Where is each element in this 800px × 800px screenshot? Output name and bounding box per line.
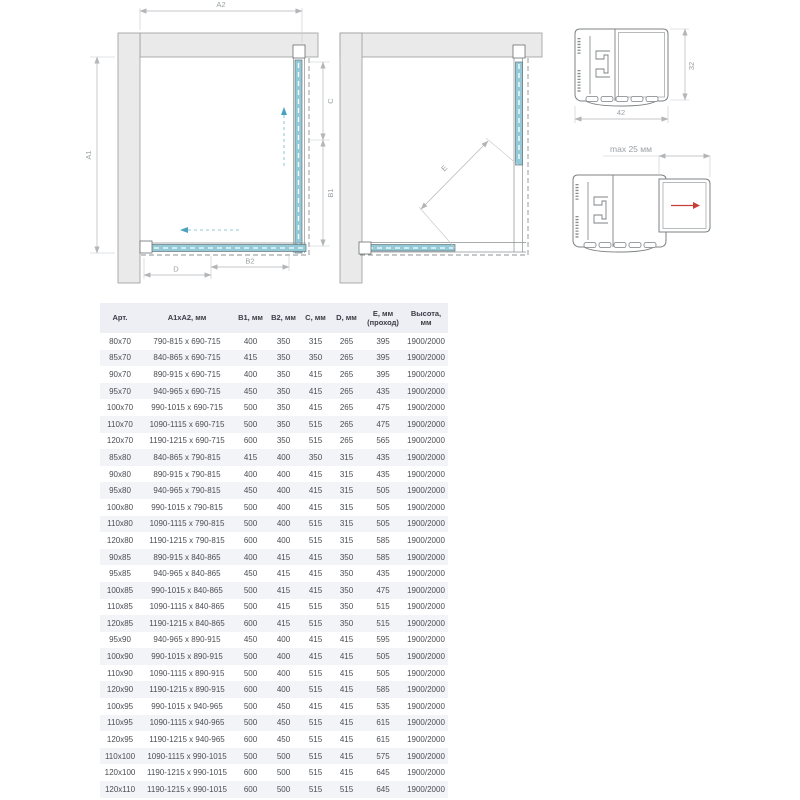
table-cell: 85x70 bbox=[100, 350, 140, 367]
table-row: 95x90940-965 x 890-915450400415415595190… bbox=[100, 632, 448, 649]
table-cell: 1900/2000 bbox=[404, 632, 448, 649]
table-cell: 565 bbox=[362, 433, 404, 450]
table-cell: 500 bbox=[234, 665, 267, 682]
col-header-c: С, мм bbox=[300, 303, 331, 333]
table-cell: 400 bbox=[267, 516, 300, 533]
table-row: 95x70940-965 x 690-715450350415265435190… bbox=[100, 383, 448, 400]
table-cell: 615 bbox=[362, 731, 404, 748]
table-cell: 415 bbox=[331, 665, 362, 682]
table-cell: 1900/2000 bbox=[404, 615, 448, 632]
outer-rail-dashed bbox=[140, 58, 309, 255]
table-cell: 1900/2000 bbox=[404, 333, 448, 350]
table-cell: 120x85 bbox=[100, 615, 140, 632]
table-cell: 600 bbox=[234, 532, 267, 549]
table-cell: 265 bbox=[331, 350, 362, 367]
table-cell: 505 bbox=[362, 665, 404, 682]
table-cell: 515 bbox=[300, 665, 331, 682]
table-cell: 1900/2000 bbox=[404, 383, 448, 400]
bottom-teeth bbox=[586, 97, 658, 102]
wall-bracket-top bbox=[513, 45, 525, 58]
table-cell: 515 bbox=[300, 416, 331, 433]
table-row: 120x851190-1215 x 840-865600415515350515… bbox=[100, 615, 448, 632]
table-cell: 415 bbox=[267, 549, 300, 566]
table-cell: 435 bbox=[362, 565, 404, 582]
dim-label-d: D bbox=[173, 265, 179, 274]
table-cell: 1190-1215 x 940-965 bbox=[140, 731, 234, 748]
table-cell: 350 bbox=[267, 416, 300, 433]
table-row: 95x85940-965 x 840-865450415415350435190… bbox=[100, 565, 448, 582]
table-cell: 515 bbox=[300, 748, 331, 765]
table-cell: 1090-1115 x 890-915 bbox=[140, 665, 234, 682]
table-cell: 515 bbox=[362, 599, 404, 616]
table-cell: 1900/2000 bbox=[404, 433, 448, 450]
table-cell: 1900/2000 bbox=[404, 698, 448, 715]
table-cell: 265 bbox=[331, 433, 362, 450]
table-row: 100x80990-1015 x 790-8155004004153155051… bbox=[100, 499, 448, 516]
table-cell: 415 bbox=[300, 366, 331, 383]
table-cell: 400 bbox=[267, 648, 300, 665]
table-cell: 395 bbox=[362, 350, 404, 367]
table-cell: 415 bbox=[300, 565, 331, 582]
wall-bracket-bottom bbox=[140, 241, 152, 253]
table-cell: 500 bbox=[234, 399, 267, 416]
table-cell: 890-915 x 690-715 bbox=[140, 366, 234, 383]
table-cell: 400 bbox=[267, 632, 300, 649]
table-cell: 315 bbox=[331, 532, 362, 549]
table-cell: 110x85 bbox=[100, 599, 140, 616]
table-row: 120x901190-1215 x 890-915600400515415585… bbox=[100, 681, 448, 698]
table-cell: 400 bbox=[267, 532, 300, 549]
table-cell: 265 bbox=[331, 416, 362, 433]
table-cell: 415 bbox=[300, 648, 331, 665]
table-cell: 350 bbox=[267, 333, 300, 350]
table-cell: 500 bbox=[234, 582, 267, 599]
table-cell: 110x70 bbox=[100, 416, 140, 433]
table-cell: 645 bbox=[362, 764, 404, 781]
table-cell: 585 bbox=[362, 549, 404, 566]
col-header-d: D, мм bbox=[331, 303, 362, 333]
table-cell: 1090-1115 x 990-1015 bbox=[140, 748, 234, 765]
table-row: 110x701090-1115 x 690-715500350515265475… bbox=[100, 416, 448, 433]
table-cell: 350 bbox=[267, 350, 300, 367]
dim-label-max25: max 25 мм bbox=[610, 144, 652, 154]
table-cell: 120x100 bbox=[100, 764, 140, 781]
size-spec-table: Арт. А1хА2, мм В1, мм В2, мм С, мм D, мм… bbox=[100, 303, 448, 798]
col-header-b1: В1, мм bbox=[234, 303, 267, 333]
wall-bracket-top bbox=[293, 45, 305, 58]
table-header-row: Арт. А1хА2, мм В1, мм В2, мм С, мм D, мм… bbox=[100, 303, 448, 333]
table-cell: 940-965 x 790-815 bbox=[140, 482, 234, 499]
table-row: 100x90990-1015 x 890-9155004004154155051… bbox=[100, 648, 448, 665]
table-cell: 1900/2000 bbox=[404, 416, 448, 433]
table-cell: 940-965 x 690-715 bbox=[140, 383, 234, 400]
dim-label-b2: B2 bbox=[245, 257, 254, 266]
table-cell: 1900/2000 bbox=[404, 748, 448, 765]
table-cell: 110x100 bbox=[100, 748, 140, 765]
table-cell: 350 bbox=[331, 599, 362, 616]
table-cell: 315 bbox=[331, 482, 362, 499]
col-header-b2: В2, мм bbox=[267, 303, 300, 333]
table-cell: 515 bbox=[300, 764, 331, 781]
table-cell: 415 bbox=[331, 764, 362, 781]
table-row: 85x70840-865 x 690-715415350350265395190… bbox=[100, 350, 448, 367]
table-cell: 415 bbox=[331, 731, 362, 748]
wall-left bbox=[118, 33, 140, 283]
table-row: 110x1001090-1115 x 990-10155005005154155… bbox=[100, 748, 448, 765]
table-cell: 415 bbox=[234, 350, 267, 367]
table-cell: 840-865 x 790-815 bbox=[140, 449, 234, 466]
table-row: 90x80890-915 x 790-815400400415315435190… bbox=[100, 466, 448, 483]
table-cell: 315 bbox=[331, 516, 362, 533]
table-row: 95x80940-965 x 790-815450400415315505190… bbox=[100, 482, 448, 499]
table-cell: 415 bbox=[331, 715, 362, 732]
table-cell: 415 bbox=[300, 466, 331, 483]
table-cell: 500 bbox=[234, 599, 267, 616]
dim-label-42: 42 bbox=[617, 108, 625, 117]
table-cell: 450 bbox=[234, 482, 267, 499]
table-cell: 415 bbox=[300, 399, 331, 416]
slide-arrow-up-icon bbox=[281, 107, 287, 115]
table-cell: 400 bbox=[234, 549, 267, 566]
table-cell: 645 bbox=[362, 781, 404, 798]
table-row: 120x1001190-1215 x 990-10156005005154156… bbox=[100, 764, 448, 781]
table-cell: 940-965 x 840-865 bbox=[140, 565, 234, 582]
table-cell: 350 bbox=[267, 433, 300, 450]
table-cell: 1900/2000 bbox=[404, 582, 448, 599]
table-cell: 435 bbox=[362, 449, 404, 466]
table-cell: 1900/2000 bbox=[404, 599, 448, 616]
table-row: 90x70890-915 x 690-715400350415265395190… bbox=[100, 366, 448, 383]
table-cell: 315 bbox=[331, 466, 362, 483]
table-cell: 415 bbox=[300, 482, 331, 499]
table-cell: 400 bbox=[267, 499, 300, 516]
table-cell: 315 bbox=[331, 499, 362, 516]
table-cell: 110x95 bbox=[100, 715, 140, 732]
table-cell: 415 bbox=[331, 632, 362, 649]
col-header-a1xa2: А1хА2, мм bbox=[140, 303, 234, 333]
slide-arrow-left-icon bbox=[180, 227, 188, 233]
table-cell: 100x90 bbox=[100, 648, 140, 665]
table-cell: 535 bbox=[362, 698, 404, 715]
table-cell: 515 bbox=[300, 615, 331, 632]
table-cell: 395 bbox=[362, 333, 404, 350]
table-cell: 475 bbox=[362, 416, 404, 433]
table-cell: 585 bbox=[362, 532, 404, 549]
table-cell: 515 bbox=[300, 433, 331, 450]
table-cell: 400 bbox=[234, 366, 267, 383]
table-cell: 600 bbox=[234, 781, 267, 798]
table-row: 110x851090-1115 x 840-865500415515350515… bbox=[100, 599, 448, 616]
table-row: 120x1101190-1215 x 990-10156005005155156… bbox=[100, 781, 448, 798]
table-cell: 100x80 bbox=[100, 499, 140, 516]
table-cell: 90x70 bbox=[100, 366, 140, 383]
plan-diagram-closed: A2 A1 C B1 B2 D bbox=[60, 0, 340, 300]
table-cell: 450 bbox=[234, 383, 267, 400]
table-cell: 600 bbox=[234, 681, 267, 698]
table-cell: 600 bbox=[234, 433, 267, 450]
profile-section-wall: 32 42 bbox=[560, 10, 800, 135]
table-cell: 450 bbox=[234, 565, 267, 582]
table-cell: 990-1015 x 840-865 bbox=[140, 582, 234, 599]
table-cell: 505 bbox=[362, 482, 404, 499]
table-cell: 840-865 x 690-715 bbox=[140, 350, 234, 367]
wall-top bbox=[140, 33, 318, 57]
table-cell: 505 bbox=[362, 516, 404, 533]
table-cell: 1190-1215 x 990-1015 bbox=[140, 764, 234, 781]
table-cell: 435 bbox=[362, 383, 404, 400]
table-cell: 350 bbox=[267, 399, 300, 416]
table-cell: 990-1015 x 690-715 bbox=[140, 399, 234, 416]
table-cell: 415 bbox=[300, 383, 331, 400]
table-cell: 500 bbox=[234, 748, 267, 765]
table-cell: 615 bbox=[362, 715, 404, 732]
table-cell: 890-915 x 790-815 bbox=[140, 466, 234, 483]
table-cell: 515 bbox=[362, 615, 404, 632]
table-cell: 515 bbox=[300, 731, 331, 748]
spec-sheet-page: A2 A1 C B1 B2 D bbox=[0, 0, 800, 800]
col-header-height: Высота, мм bbox=[404, 303, 448, 333]
table-cell: 1900/2000 bbox=[404, 350, 448, 367]
table-cell: 505 bbox=[362, 648, 404, 665]
table-cell: 1900/2000 bbox=[404, 715, 448, 732]
table-cell: 400 bbox=[267, 681, 300, 698]
table-cell: 1190-1215 x 790-815 bbox=[140, 532, 234, 549]
table-cell: 990-1015 x 890-915 bbox=[140, 648, 234, 665]
table-cell: 1900/2000 bbox=[404, 366, 448, 383]
table-cell: 505 bbox=[362, 499, 404, 516]
dim-label-e: E bbox=[439, 163, 449, 173]
table-cell: 475 bbox=[362, 399, 404, 416]
table-cell: 350 bbox=[300, 449, 331, 466]
table-cell: 500 bbox=[267, 748, 300, 765]
table-cell: 120x110 bbox=[100, 781, 140, 798]
table-cell: 500 bbox=[234, 516, 267, 533]
table-cell: 415 bbox=[331, 748, 362, 765]
table-cell: 500 bbox=[234, 715, 267, 732]
table-cell: 415 bbox=[300, 499, 331, 516]
table-cell: 1900/2000 bbox=[404, 565, 448, 582]
profile-section-adjustable: max 25 мм bbox=[555, 135, 800, 270]
table-cell: 315 bbox=[300, 333, 331, 350]
table-cell: 415 bbox=[300, 632, 331, 649]
outer-rail-dashed bbox=[359, 58, 528, 255]
table-row: 90x85890-915 x 840-865400415415350585190… bbox=[100, 549, 448, 566]
table-cell: 350 bbox=[331, 565, 362, 582]
table-cell: 395 bbox=[362, 366, 404, 383]
table-cell: 350 bbox=[331, 549, 362, 566]
table-row: 80x70790-815 x 690-715400350315265395190… bbox=[100, 333, 448, 350]
table-cell: 1900/2000 bbox=[404, 781, 448, 798]
table-cell: 585 bbox=[362, 681, 404, 698]
wall-top bbox=[340, 33, 542, 57]
table-cell: 450 bbox=[267, 731, 300, 748]
table-cell: 600 bbox=[234, 615, 267, 632]
table-cell: 600 bbox=[234, 731, 267, 748]
table-cell: 515 bbox=[331, 781, 362, 798]
table-cell: 595 bbox=[362, 632, 404, 649]
table-cell: 575 bbox=[362, 748, 404, 765]
table-cell: 1090-1115 x 790-815 bbox=[140, 516, 234, 533]
table-cell: 600 bbox=[234, 764, 267, 781]
table-cell: 1900/2000 bbox=[404, 499, 448, 516]
profile-outline bbox=[573, 175, 666, 252]
table-cell: 85x80 bbox=[100, 449, 140, 466]
table-cell: 350 bbox=[267, 383, 300, 400]
table-cell: 1090-1115 x 840-865 bbox=[140, 599, 234, 616]
table-cell: 1900/2000 bbox=[404, 449, 448, 466]
table-cell: 1900/2000 bbox=[404, 399, 448, 416]
table-cell: 515 bbox=[300, 599, 331, 616]
table-cell: 450 bbox=[267, 698, 300, 715]
dim-label-a1: A1 bbox=[84, 150, 93, 159]
dim-label-32: 32 bbox=[687, 62, 696, 70]
table-cell: 95x70 bbox=[100, 383, 140, 400]
wall-bracket-bottom bbox=[359, 242, 371, 254]
table-cell: 265 bbox=[331, 333, 362, 350]
col-header-e: Е, мм (проход) bbox=[362, 303, 404, 333]
table-row: 110x951090-1115 x 940-965500450515415615… bbox=[100, 715, 448, 732]
table-cell: 990-1015 x 940-965 bbox=[140, 698, 234, 715]
table-cell: 95x85 bbox=[100, 565, 140, 582]
table-cell: 1190-1215 x 690-715 bbox=[140, 433, 234, 450]
table-cell: 450 bbox=[234, 632, 267, 649]
table-cell: 500 bbox=[267, 781, 300, 798]
table-cell: 1900/2000 bbox=[404, 648, 448, 665]
table-row: 110x801090-1115 x 790-815500400515315505… bbox=[100, 516, 448, 533]
table-cell: 415 bbox=[267, 599, 300, 616]
table-cell: 415 bbox=[331, 698, 362, 715]
table-row: 120x801190-1215 x 790-815600400515315585… bbox=[100, 532, 448, 549]
table-cell: 500 bbox=[234, 648, 267, 665]
table-cell: 400 bbox=[267, 449, 300, 466]
table-row: 85x80840-865 x 790-815415400350315435190… bbox=[100, 449, 448, 466]
table-cell: 500 bbox=[234, 698, 267, 715]
table-cell: 475 bbox=[362, 582, 404, 599]
table-cell: 1900/2000 bbox=[404, 731, 448, 748]
table-cell: 415 bbox=[300, 582, 331, 599]
table-cell: 515 bbox=[300, 715, 331, 732]
table-cell: 450 bbox=[267, 715, 300, 732]
table-cell: 1900/2000 bbox=[404, 665, 448, 682]
table-cell: 500 bbox=[234, 416, 267, 433]
table-cell: 515 bbox=[300, 532, 331, 549]
table-cell: 1900/2000 bbox=[404, 549, 448, 566]
table-cell: 1900/2000 bbox=[404, 482, 448, 499]
table-cell: 400 bbox=[267, 665, 300, 682]
table-cell: 415 bbox=[300, 698, 331, 715]
table-cell: 1190-1215 x 890-915 bbox=[140, 681, 234, 698]
table-cell: 515 bbox=[300, 681, 331, 698]
col-header-art: Арт. bbox=[100, 303, 140, 333]
table-row: 100x85990-1015 x 840-8655004154153504751… bbox=[100, 582, 448, 599]
table-cell: 415 bbox=[300, 549, 331, 566]
table-cell: 515 bbox=[300, 781, 331, 798]
table-cell: 120x95 bbox=[100, 731, 140, 748]
table-cell: 100x95 bbox=[100, 698, 140, 715]
table-cell: 1090-1115 x 690-715 bbox=[140, 416, 234, 433]
bottom-teeth bbox=[584, 243, 656, 248]
table-cell: 350 bbox=[331, 582, 362, 599]
table-row: 120x701190-1215 x 690-715600350515265565… bbox=[100, 433, 448, 450]
table-cell: 415 bbox=[267, 582, 300, 599]
table-cell: 265 bbox=[331, 383, 362, 400]
table-cell: 415 bbox=[267, 565, 300, 582]
table-cell: 120x80 bbox=[100, 532, 140, 549]
table-cell: 265 bbox=[331, 366, 362, 383]
table-cell: 120x70 bbox=[100, 433, 140, 450]
table-cell: 400 bbox=[267, 466, 300, 483]
table-cell: 1900/2000 bbox=[404, 466, 448, 483]
table-cell: 1900/2000 bbox=[404, 764, 448, 781]
table-cell: 80x70 bbox=[100, 333, 140, 350]
dim-label-a2: A2 bbox=[216, 0, 225, 9]
table-row: 100x95990-1015 x 940-9655004504154155351… bbox=[100, 698, 448, 715]
table-cell: 110x90 bbox=[100, 665, 140, 682]
table-cell: 1190-1215 x 840-865 bbox=[140, 615, 234, 632]
table-cell: 500 bbox=[267, 764, 300, 781]
table-cell: 1190-1215 x 990-1015 bbox=[140, 781, 234, 798]
table-cell: 990-1015 x 790-815 bbox=[140, 499, 234, 516]
table-cell: 940-965 x 890-915 bbox=[140, 632, 234, 649]
table-cell: 415 bbox=[331, 681, 362, 698]
table-row: 110x901090-1115 x 890-915500400515415505… bbox=[100, 665, 448, 682]
table-cell: 415 bbox=[234, 449, 267, 466]
table-cell: 265 bbox=[331, 399, 362, 416]
table-cell: 350 bbox=[331, 615, 362, 632]
table-row: 120x951190-1215 x 940-965600450515415615… bbox=[100, 731, 448, 748]
plan-diagram-open: E bbox=[330, 0, 560, 300]
table-cell: 400 bbox=[267, 482, 300, 499]
table-cell: 415 bbox=[267, 615, 300, 632]
table-cell: 90x85 bbox=[100, 549, 140, 566]
table-cell: 90x80 bbox=[100, 466, 140, 483]
profile-outline bbox=[575, 29, 668, 106]
table-cell: 890-915 x 840-865 bbox=[140, 549, 234, 566]
table-cell: 100x70 bbox=[100, 399, 140, 416]
table-cell: 1900/2000 bbox=[404, 681, 448, 698]
table-cell: 435 bbox=[362, 466, 404, 483]
table-cell: 110x80 bbox=[100, 516, 140, 533]
table-row: 100x70990-1015 x 690-7155003504152654751… bbox=[100, 399, 448, 416]
table-cell: 95x80 bbox=[100, 482, 140, 499]
table-cell: 500 bbox=[234, 499, 267, 516]
table-cell: 515 bbox=[300, 516, 331, 533]
table-cell: 415 bbox=[331, 648, 362, 665]
table-cell: 350 bbox=[267, 366, 300, 383]
table-cell: 315 bbox=[331, 449, 362, 466]
table-cell: 400 bbox=[234, 333, 267, 350]
table-cell: 100x85 bbox=[100, 582, 140, 599]
table-cell: 350 bbox=[300, 350, 331, 367]
table-cell: 120x90 bbox=[100, 681, 140, 698]
table-cell: 1090-1115 x 940-965 bbox=[140, 715, 234, 732]
table-cell: 1900/2000 bbox=[404, 532, 448, 549]
table-cell: 400 bbox=[234, 466, 267, 483]
table-cell: 95x90 bbox=[100, 632, 140, 649]
table-cell: 1900/2000 bbox=[404, 516, 448, 533]
table-cell: 790-815 x 690-715 bbox=[140, 333, 234, 350]
